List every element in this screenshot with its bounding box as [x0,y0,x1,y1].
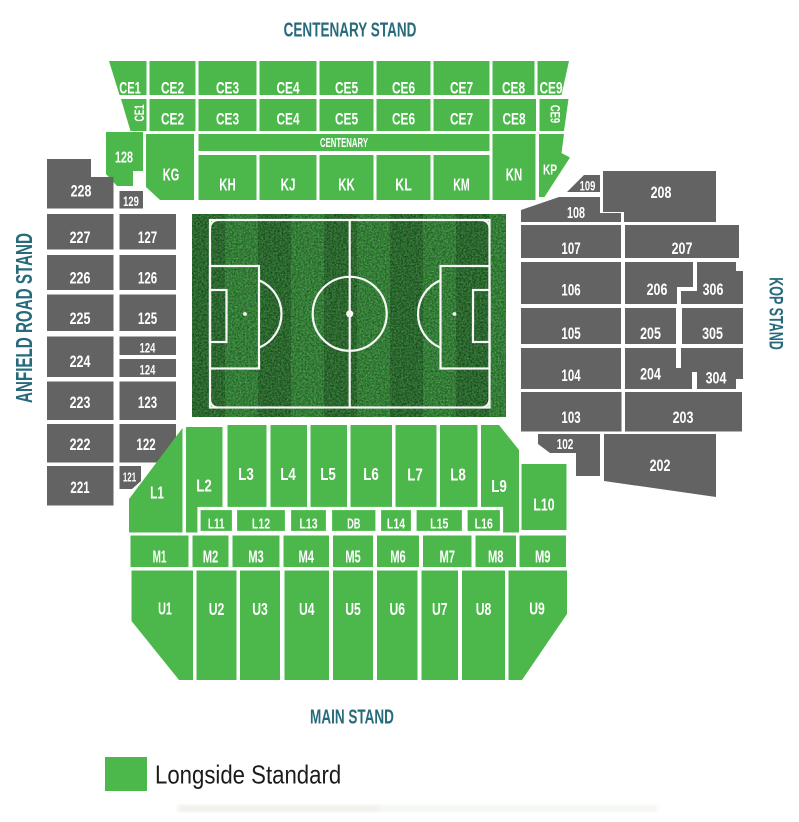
svg-text:CE5: CE5 [335,79,358,98]
svg-text:CE7: CE7 [450,110,473,129]
svg-text:U5: U5 [345,599,361,619]
svg-text:L9: L9 [491,476,507,496]
svg-text:CE2: CE2 [161,110,184,129]
svg-text:KK: KK [338,174,355,194]
svg-text:CE3: CE3 [216,79,239,98]
svg-text:102: 102 [557,437,574,453]
svg-text:KP: KP [543,161,557,178]
svg-text:KJ: KJ [281,174,296,194]
svg-text:109: 109 [580,178,596,193]
svg-text:CE3: CE3 [216,110,239,129]
svg-text:221: 221 [70,479,89,497]
svg-text:M3: M3 [248,546,264,566]
svg-text:CE1: CE1 [132,104,147,121]
svg-text:202: 202 [650,457,671,475]
svg-text:U3: U3 [252,599,268,619]
svg-text:123: 123 [138,394,157,412]
svg-text:CE7: CE7 [450,79,473,98]
svg-text:M1: M1 [153,546,167,566]
svg-text:Longside Standard: Longside Standard [155,761,341,790]
svg-text:CE6: CE6 [392,110,415,129]
svg-text:105: 105 [561,325,580,343]
svg-text:L4: L4 [280,464,296,484]
svg-text:124: 124 [140,340,156,355]
svg-text:205: 205 [640,325,661,343]
svg-text:MAIN STAND: MAIN STAND [310,704,394,728]
svg-text:L10: L10 [533,494,554,514]
svg-text:206: 206 [647,281,668,299]
svg-text:ANFIELD ROAD STAND: ANFIELD ROAD STAND [12,233,38,403]
svg-text:L1: L1 [150,482,164,502]
svg-text:106: 106 [561,281,580,299]
svg-text:DB: DB [347,515,360,532]
svg-text:U9: U9 [529,598,545,618]
svg-text:226: 226 [70,269,91,287]
svg-text:M7: M7 [439,546,455,566]
svg-text:M6: M6 [390,546,406,566]
svg-text:M5: M5 [345,546,361,566]
svg-text:CE4: CE4 [276,110,299,129]
svg-text:223: 223 [70,394,91,412]
svg-text:KN: KN [506,164,522,184]
svg-text:305: 305 [702,325,723,343]
svg-text:104: 104 [561,367,581,385]
svg-text:L5: L5 [320,464,336,484]
svg-text:U1: U1 [158,598,172,618]
svg-text:U7: U7 [432,599,448,619]
svg-text:CE6: CE6 [392,79,415,98]
svg-text:127: 127 [138,229,157,247]
svg-text:L15: L15 [430,515,448,532]
svg-text:M8: M8 [488,546,504,566]
svg-text:CE8: CE8 [502,110,525,129]
svg-text:CE1: CE1 [119,79,140,98]
svg-text:129: 129 [123,194,139,209]
svg-text:121: 121 [123,471,136,485]
svg-text:KH: KH [219,174,235,194]
svg-text:107: 107 [561,240,580,258]
svg-text:CENTENARY: CENTENARY [320,136,368,150]
svg-text:L13: L13 [299,515,317,532]
svg-text:L16: L16 [475,515,493,532]
svg-text:225: 225 [70,310,91,328]
svg-text:204: 204 [640,365,661,383]
svg-text:U6: U6 [389,599,405,619]
svg-text:U8: U8 [476,599,492,619]
svg-text:126: 126 [138,269,157,287]
svg-text:222: 222 [70,436,91,454]
svg-text:CE4: CE4 [276,79,299,98]
svg-text:L14: L14 [387,515,406,532]
svg-text:KM: KM [453,174,469,194]
svg-text:208: 208 [651,184,672,202]
svg-text:CE8: CE8 [502,79,525,98]
svg-text:M9: M9 [535,546,551,566]
svg-text:207: 207 [672,240,693,258]
svg-text:128: 128 [115,150,133,167]
svg-text:CE9: CE9 [548,105,563,123]
svg-text:KL: KL [395,174,412,194]
svg-text:L7: L7 [407,464,423,484]
svg-text:KG: KG [163,164,179,184]
svg-text:304: 304 [706,369,727,387]
svg-text:KOP STAND: KOP STAND [765,277,786,350]
svg-text:L12: L12 [252,515,270,532]
svg-text:CE5: CE5 [335,110,358,129]
svg-text:L6: L6 [363,464,379,484]
svg-text:M4: M4 [298,546,314,566]
svg-text:203: 203 [673,409,694,427]
svg-text:306: 306 [703,281,724,299]
svg-text:122: 122 [136,436,155,454]
svg-text:227: 227 [70,229,91,247]
svg-text:CENTENARY STAND: CENTENARY STAND [284,17,417,41]
svg-text:M2: M2 [203,546,219,566]
svg-text:L8: L8 [450,464,466,484]
svg-text:L2: L2 [196,475,212,495]
svg-text:224: 224 [70,353,91,371]
svg-text:108: 108 [567,205,585,222]
svg-text:103: 103 [561,409,580,427]
svg-text:U4: U4 [299,599,315,619]
svg-text:228: 228 [71,182,92,200]
svg-text:125: 125 [138,310,157,328]
svg-text:L3: L3 [238,464,254,484]
svg-text:U2: U2 [209,599,225,619]
svg-text:L11: L11 [208,515,225,532]
svg-text:124: 124 [140,362,156,377]
svg-text:CE9: CE9 [539,79,562,98]
svg-text:CE2: CE2 [161,79,184,98]
